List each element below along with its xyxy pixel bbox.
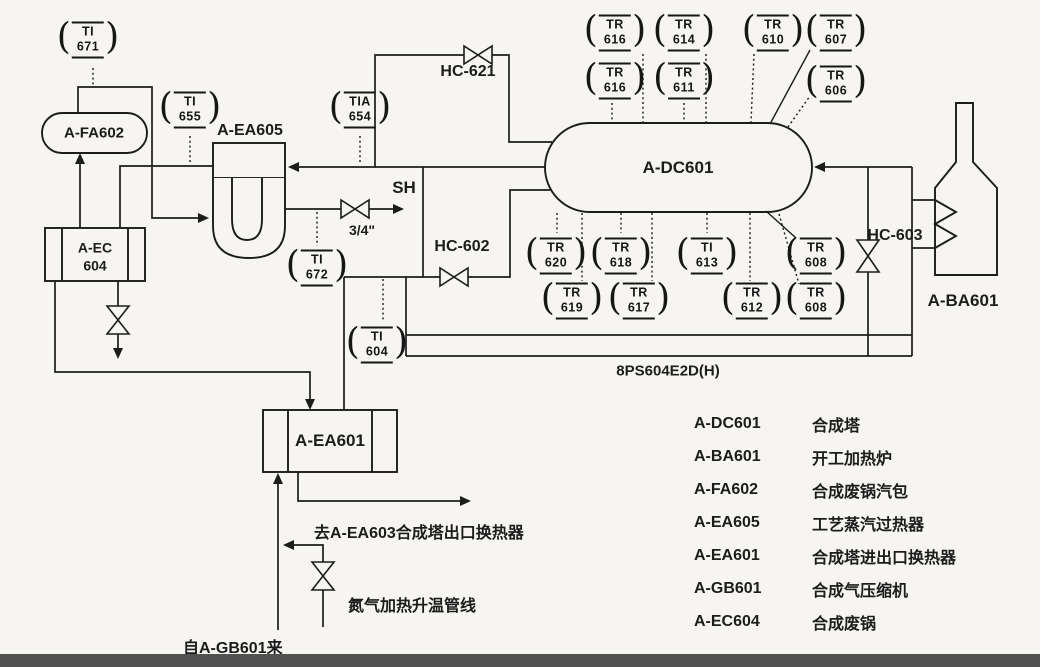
instrument-number: 611: [673, 81, 695, 96]
instrument-tag: TI: [184, 95, 196, 110]
arrowhead: [393, 204, 404, 214]
instrument-bubble-tr-612: (TR612): [721, 283, 783, 320]
legend-row-a-ea605: A-EA605工艺蒸汽过热器: [694, 506, 956, 539]
instrument-bubble-tia-654: (TIA654): [329, 92, 391, 129]
valve-ec604-blowdown: [107, 306, 129, 334]
instrument-bubble-tr-620: (TR620): [525, 238, 587, 275]
legend-code: A-EA605: [694, 514, 812, 532]
arrowhead: [305, 399, 315, 410]
legend-row-a-dc601: A-DC601合成塔: [694, 407, 956, 440]
vessel-ea605-shell-box: [213, 143, 285, 178]
instrument-bubble-tr-608: (TR608): [785, 238, 847, 275]
label-pipeline-code: 8PS604E2D(H): [616, 363, 719, 380]
instrument-tag: TI: [371, 330, 383, 345]
instrument-tag: TR: [807, 241, 825, 256]
legend-code: A-EA601: [694, 547, 812, 565]
legend-name: 合成塔: [812, 412, 860, 436]
instrument-number: 654: [349, 110, 371, 125]
legend-row-a-fa602: A-FA602合成废锅汽包: [694, 473, 956, 506]
instrument-number: 619: [561, 301, 583, 316]
legend-row-a-ba601: A-BA601开工加热炉: [694, 440, 956, 473]
paren-right: ): [632, 16, 646, 50]
legend-code: A-GB601: [694, 580, 812, 598]
paren-right: ): [105, 23, 119, 57]
label-fa602: A-FA602: [64, 125, 124, 142]
paren-right: ): [394, 328, 408, 362]
paren-left: (: [608, 284, 622, 318]
paren-left: (: [805, 67, 819, 101]
instrument-bubble-tr-614: (TR614): [653, 15, 715, 52]
instrument-tag: TR: [807, 286, 825, 301]
instrument-number: 655: [179, 110, 201, 125]
legend: A-DC601合成塔A-BA601开工加热炉A-FA602合成废锅汽包A-EA6…: [694, 407, 956, 638]
vessel-ea605-u-shell: [213, 178, 285, 258]
instrument-bubble-ti-671: (TI671): [57, 22, 119, 59]
label-ec604-line2: 604: [78, 257, 112, 275]
instrument-number: 608: [805, 256, 827, 271]
paren-left: (: [584, 64, 598, 98]
instrument-bubble-tr-618: (TR618): [590, 238, 652, 275]
instrument-number: 612: [741, 301, 763, 316]
instrument-bubble-ti-604: (TI604): [346, 327, 408, 364]
instrument-tag: TR: [827, 18, 845, 33]
paren-left: (: [676, 239, 690, 273]
instrument-bubble-tr-606: (TR606): [805, 66, 867, 103]
paren-right: ): [769, 284, 783, 318]
label-ea601: A-EA601: [295, 431, 365, 451]
instrument-bubble-tr-616: (TR616): [584, 63, 646, 100]
instrument-number: 618: [610, 256, 632, 271]
instrument-tag: TR: [606, 66, 624, 81]
paren-left: (: [286, 251, 300, 285]
legend-name: 合成气压缩机: [812, 577, 908, 601]
label-ea605: A-EA605: [217, 122, 283, 140]
paren-left: (: [742, 16, 756, 50]
instrument-bubble-tr-607: (TR607): [805, 15, 867, 52]
instrument-tag: TR: [675, 66, 693, 81]
valve-nitrogen-line: [312, 562, 334, 590]
arrowhead: [198, 213, 209, 223]
instrument-number: 610: [762, 33, 784, 48]
pipe-ea601-outlet: [298, 472, 463, 501]
paren-right: ): [638, 239, 652, 273]
instrument-tag: TI: [701, 241, 713, 256]
arrowhead: [283, 540, 294, 550]
pipe-hc602-run: [344, 190, 552, 277]
paren-right: ): [833, 239, 847, 273]
legend-name: 开工加热炉: [812, 445, 892, 469]
paren-left: (: [590, 239, 604, 273]
instrument-number: 672: [306, 268, 328, 283]
paren-right: ): [853, 67, 867, 101]
paren-left: (: [805, 16, 819, 50]
paren-left: (: [346, 328, 360, 362]
paren-left: (: [785, 239, 799, 273]
paren-left: (: [785, 284, 799, 318]
instrument-tag: TR: [606, 18, 624, 33]
paren-right: ): [377, 93, 391, 127]
arrowhead: [75, 153, 85, 164]
legend-code: A-DC601: [694, 415, 812, 433]
label-to-ea603: 去A-EA603合成塔出口换热器: [314, 519, 524, 543]
instrument-tag: TR: [764, 18, 782, 33]
arrowhead: [113, 348, 123, 359]
instrument-tag: TI: [82, 25, 94, 40]
paren-left: (: [159, 93, 173, 127]
legend-code: A-BA601: [694, 448, 812, 466]
label-sh: SH: [392, 178, 416, 198]
instrument-tag: TIA: [349, 95, 371, 110]
instrument-tag: TR: [675, 18, 693, 33]
paren-left: (: [329, 93, 343, 127]
instrument-number: 614: [673, 33, 695, 48]
instrument-tag: TR: [827, 69, 845, 84]
instrument-tag: TR: [612, 241, 630, 256]
paren-right: ): [701, 16, 715, 50]
paren-left: (: [57, 23, 71, 57]
valve-sh-steam-3-4: [341, 200, 369, 218]
label-valve-size: 3/4": [349, 222, 375, 238]
legend-name: 合成废锅: [812, 610, 876, 634]
instrument-tag: TI: [311, 253, 323, 268]
instrument-number: 617: [628, 301, 650, 316]
instrument-number: 613: [696, 256, 718, 271]
instrument-bubble-tr-611: (TR611): [653, 63, 715, 100]
instrument-number: 620: [545, 256, 567, 271]
paren-right: ): [853, 16, 867, 50]
label-nitrogen-line: 氮气加热升温管线: [348, 592, 476, 616]
instrument-bubble-tr-608: (TR608): [785, 283, 847, 320]
instrument-bubble-tr-619: (TR619): [541, 283, 603, 320]
label-ec604-line1: A-EC: [78, 240, 112, 258]
connector-tr610: [751, 54, 754, 122]
paren-right: ): [656, 284, 670, 318]
legend-row-a-ec604: A-EC604合成废锅: [694, 605, 956, 638]
label-ba601: A-BA601: [928, 291, 999, 311]
label-dc601: A-DC601: [643, 158, 714, 178]
paren-right: ): [207, 93, 221, 127]
instrument-bubble-tr-617: (TR617): [608, 283, 670, 320]
instrument-tag: TR: [630, 286, 648, 301]
paren-left: (: [584, 16, 598, 50]
legend-code: A-FA602: [694, 481, 812, 499]
label-hc621: HC-621: [440, 63, 495, 81]
legend-name: 合成废锅汽包: [812, 478, 908, 502]
instrument-tag: TR: [563, 286, 581, 301]
paren-right: ): [833, 284, 847, 318]
paren-right: ): [790, 16, 804, 50]
paren-right: ): [334, 251, 348, 285]
paren-right: ): [573, 239, 587, 273]
instrument-bubble-tr-616: (TR616): [584, 15, 646, 52]
vessel-ba601-furnace: [935, 103, 997, 275]
legend-name: 工艺蒸汽过热器: [812, 511, 924, 535]
label-hc602: HC-602: [434, 238, 489, 256]
paren-left: (: [721, 284, 735, 318]
paren-left: (: [541, 284, 555, 318]
pipe-ec604-drain-to-ea601: [55, 281, 310, 402]
instrument-bubble-ti-613: (TI613): [676, 238, 738, 275]
instrument-bubble-ti-655: (TI655): [159, 92, 221, 129]
paren-left: (: [653, 16, 667, 50]
paren-right: ): [589, 284, 603, 318]
paren-left: (: [653, 64, 667, 98]
legend-row-a-ea601: A-EA601合成塔进出口换热器: [694, 539, 956, 572]
instrument-tag: TR: [743, 286, 761, 301]
instrument-number: 604: [366, 345, 388, 360]
paren-right: ): [632, 64, 646, 98]
arrowhead: [273, 473, 283, 484]
instrument-number: 608: [805, 301, 827, 316]
legend-row-a-gb601: A-GB601合成气压缩机: [694, 572, 956, 605]
legend-name: 合成塔进出口换热器: [812, 544, 956, 568]
instrument-tag: TR: [547, 241, 565, 256]
instrument-number: 607: [825, 33, 847, 48]
valve-hc602: [440, 268, 468, 286]
paren-left: (: [525, 239, 539, 273]
label-hc603: HC-603: [867, 227, 922, 245]
instrument-number: 616: [604, 33, 626, 48]
arrowhead: [814, 162, 825, 172]
footer-strip: [0, 654, 1040, 667]
paren-right: ): [701, 64, 715, 98]
instrument-bubble-tr-610: (TR610): [742, 15, 804, 52]
paren-right: ): [724, 239, 738, 273]
instrument-number: 671: [77, 40, 99, 55]
instrument-bubble-ti-672: (TI672): [286, 250, 348, 287]
valve-hc621: [464, 46, 492, 64]
instrument-number: 606: [825, 84, 847, 99]
legend-code: A-EC604: [694, 613, 812, 631]
arrowhead: [460, 496, 471, 506]
instrument-number: 616: [604, 81, 626, 96]
label-ec604: A-EC 604: [78, 240, 112, 275]
process-flow-diagram: A-FA602 A-EC 604 A-EA605 A-DC601 A-BA601…: [0, 0, 1040, 667]
arrowhead: [288, 162, 299, 172]
